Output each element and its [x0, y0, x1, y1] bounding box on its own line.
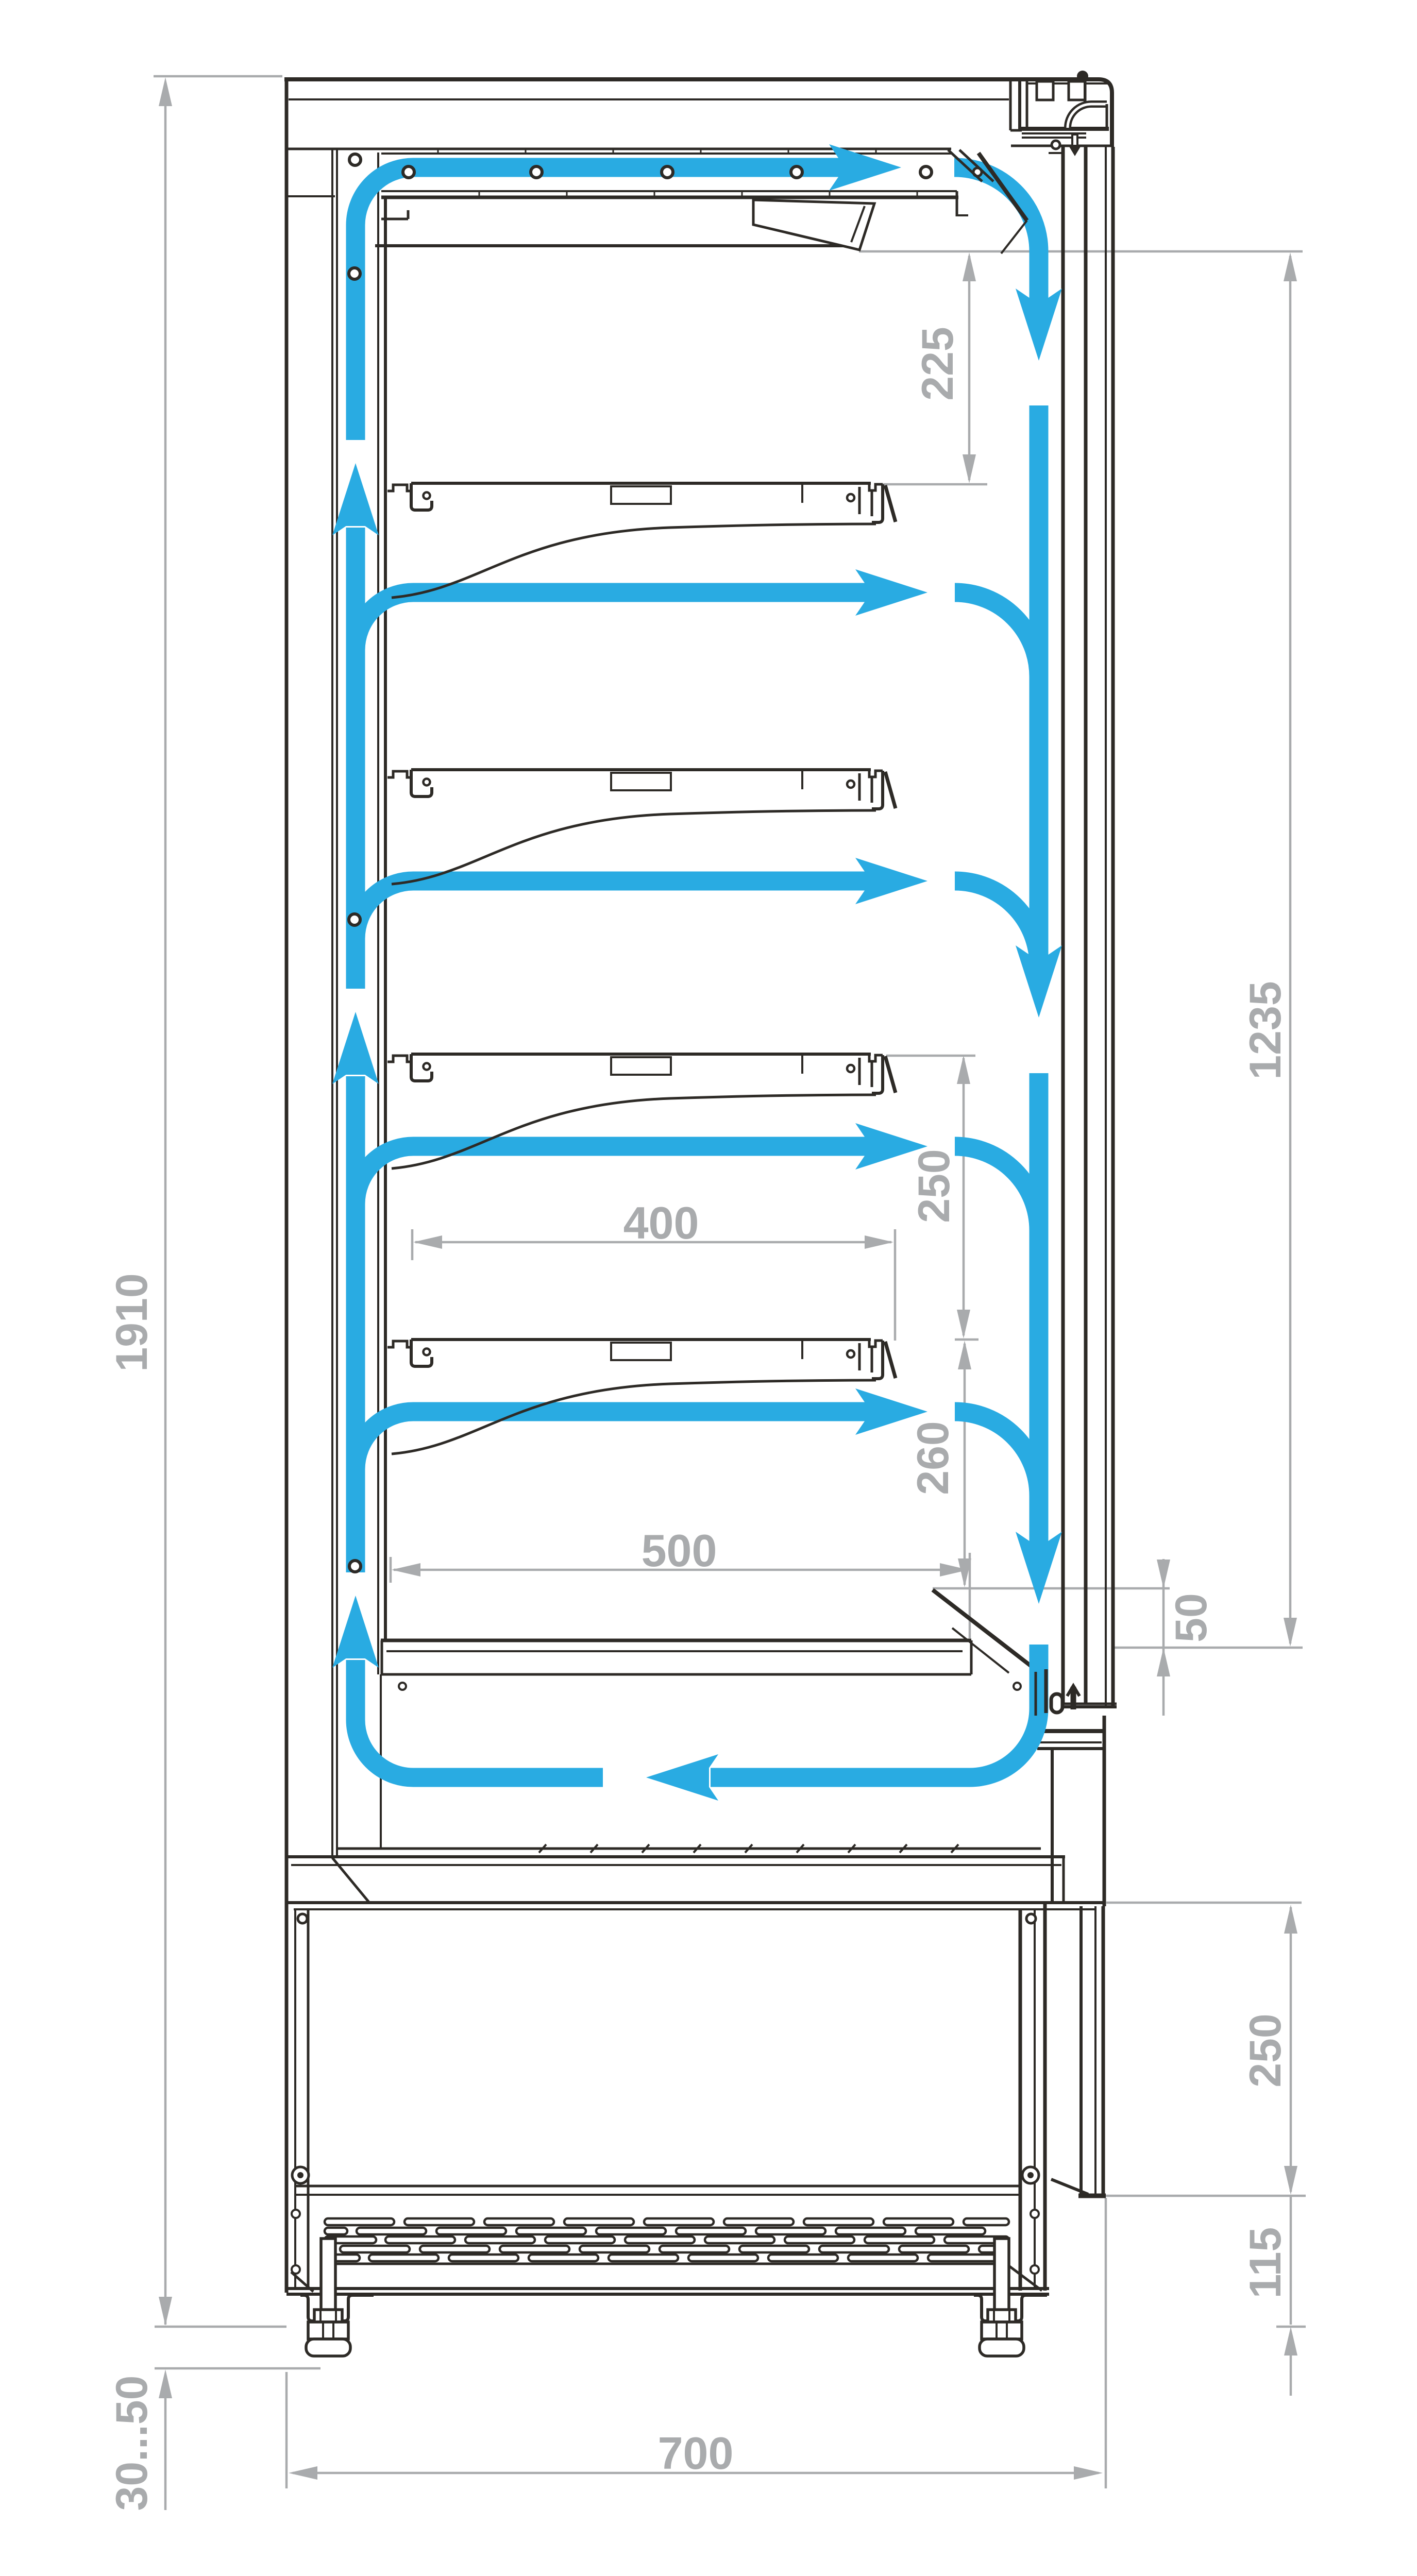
svg-text:225: 225 — [913, 327, 963, 401]
svg-text:500: 500 — [642, 1525, 717, 1576]
svg-text:250: 250 — [1241, 2013, 1290, 2088]
svg-text:250: 250 — [909, 1149, 959, 1223]
svg-text:700: 700 — [658, 2428, 734, 2479]
svg-text:260: 260 — [908, 1421, 958, 1495]
svg-text:50: 50 — [1167, 1593, 1216, 1642]
svg-text:1235: 1235 — [1241, 981, 1290, 1079]
svg-text:1910: 1910 — [107, 1273, 157, 1371]
svg-text:30...50: 30...50 — [107, 2376, 157, 2511]
svg-text:400: 400 — [623, 1197, 699, 1248]
svg-text:115: 115 — [1241, 2227, 1290, 2299]
